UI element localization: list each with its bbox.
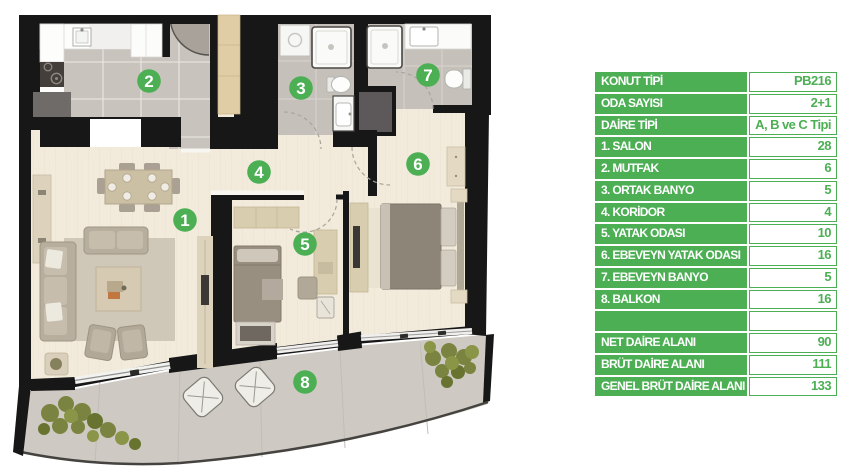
svg-text:2: 2 [144, 72, 153, 91]
svg-text:6: 6 [413, 155, 422, 174]
svg-text:4: 4 [254, 163, 264, 182]
svg-text:8: 8 [300, 373, 309, 392]
svg-text:5: 5 [300, 235, 309, 254]
svg-text:1: 1 [180, 211, 189, 230]
svg-text:3: 3 [296, 79, 305, 98]
svg-text:7: 7 [423, 66, 432, 85]
